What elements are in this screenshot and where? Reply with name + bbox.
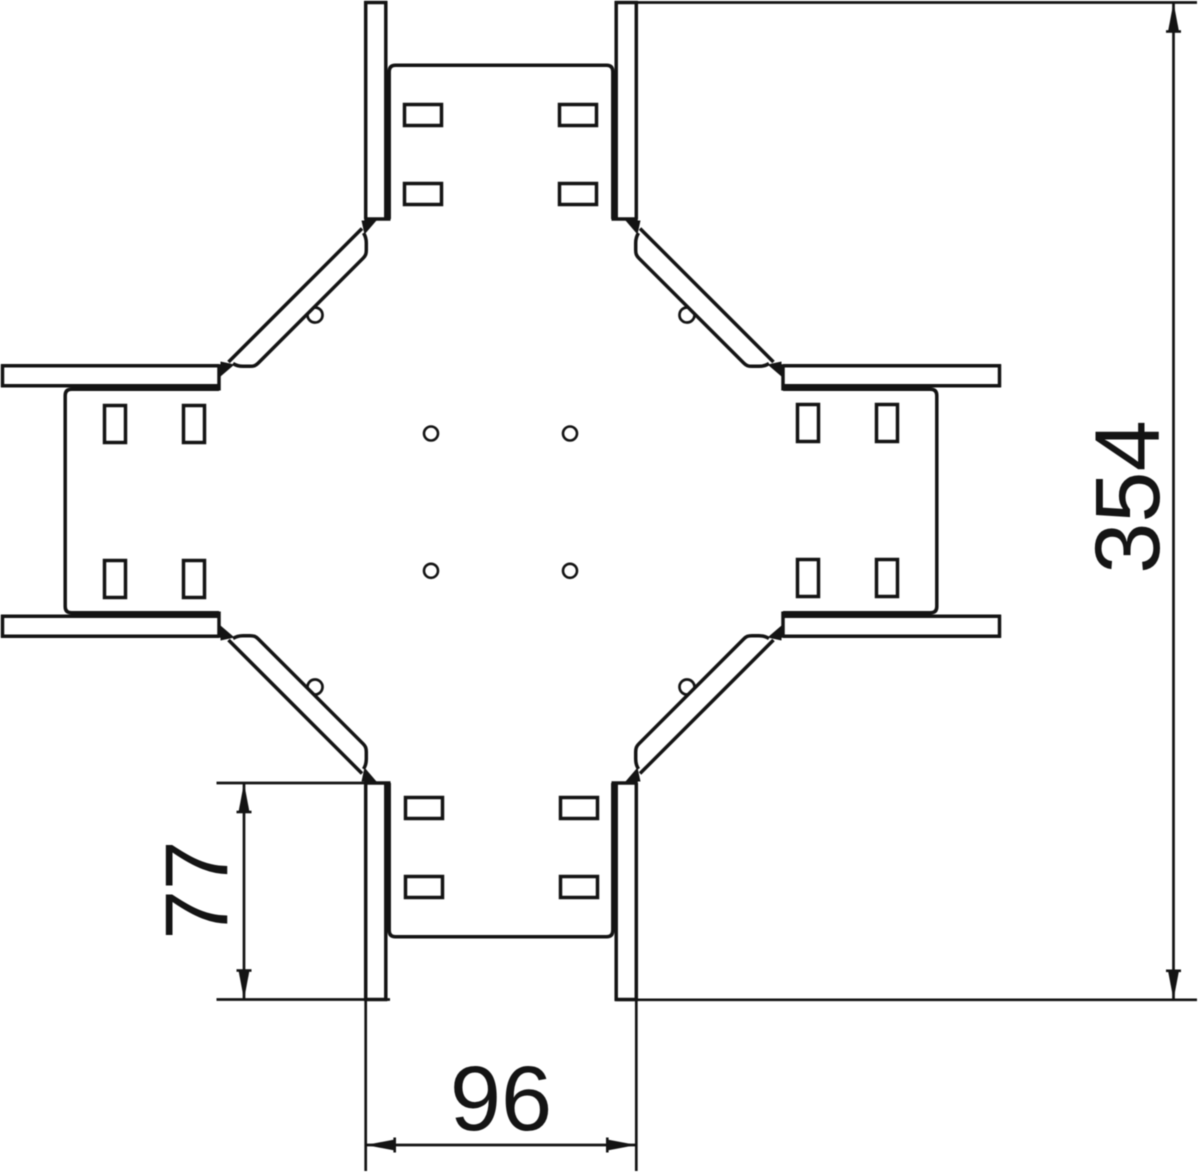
svg-text:96: 96 [450, 1048, 552, 1150]
svg-text:354: 354 [1077, 420, 1179, 574]
svg-text:77: 77 [146, 841, 246, 940]
